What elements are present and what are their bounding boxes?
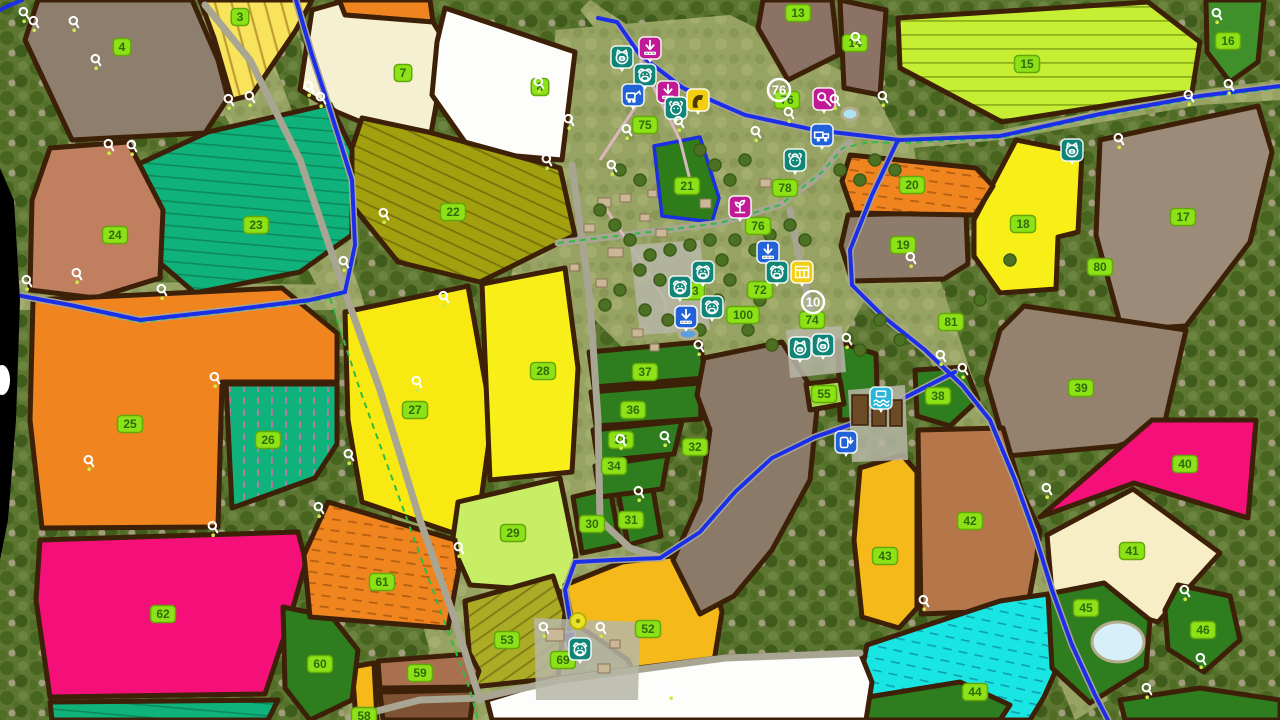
svg-text:72: 72 (753, 283, 767, 297)
vehicle-shop-icon[interactable] (622, 84, 644, 110)
cow-barn-icon[interactable] (766, 261, 788, 287)
field-43[interactable] (854, 455, 917, 628)
field-label-21: 21 (675, 178, 700, 195)
field-label-61: 61 (370, 574, 395, 591)
svg-text:32: 32 (688, 440, 702, 454)
svg-text:38: 38 (931, 389, 945, 403)
field-label-43: 43 (873, 548, 898, 565)
svg-text:43: 43 (878, 549, 892, 563)
tree (594, 204, 606, 216)
svg-text:34: 34 (607, 459, 621, 473)
unload-point-icon[interactable] (675, 306, 697, 332)
building (648, 190, 657, 197)
field-label-23: 23 (244, 217, 269, 234)
svg-text:78: 78 (778, 181, 792, 195)
tree (662, 314, 674, 326)
svg-text:29: 29 (506, 526, 520, 540)
game-map-screen: 3478222324252662272829303134353637211314… (0, 0, 1280, 720)
field-label-31: 31 (619, 512, 644, 529)
field-label-75: 75 (633, 117, 658, 134)
field-label-52: 52 (636, 621, 661, 638)
svg-text:100: 100 (733, 308, 753, 322)
liquid-unload-icon[interactable] (835, 431, 857, 457)
svg-text:13: 13 (791, 6, 805, 20)
water-station-icon[interactable] (870, 387, 892, 413)
svg-text:15: 15 (1020, 57, 1034, 71)
tree (654, 274, 666, 286)
tree (894, 334, 906, 346)
svg-text:24: 24 (108, 228, 122, 242)
svg-text:55: 55 (817, 387, 831, 401)
field-label-59: 59 (408, 665, 433, 682)
tree (599, 299, 611, 311)
svg-text:16: 16 (1221, 34, 1235, 48)
svg-text:36: 36 (626, 403, 640, 417)
field-label-46: 46 (1191, 622, 1216, 639)
field-label-38: 38 (926, 388, 951, 405)
svg-text:26: 26 (261, 433, 275, 447)
field-label-26: 26 (256, 432, 281, 449)
svg-text:52: 52 (641, 622, 655, 636)
building (608, 248, 623, 257)
circled-number-10: 10 (802, 291, 824, 313)
building (656, 229, 667, 237)
pond (1092, 622, 1144, 662)
tree (784, 219, 796, 231)
sheep-pasture-icon[interactable] (784, 149, 806, 175)
pond (679, 329, 697, 339)
tree (716, 254, 728, 266)
field-label-7: 7 (394, 65, 412, 82)
svg-text:41: 41 (1125, 544, 1139, 558)
svg-text:4: 4 (119, 40, 126, 54)
tree (874, 314, 886, 326)
field-label-76: 76 (746, 218, 771, 235)
tree (854, 344, 866, 356)
svg-text:44: 44 (968, 685, 982, 699)
field-label-60: 60 (308, 656, 333, 673)
tree (766, 339, 778, 351)
tree (704, 234, 716, 246)
tree (624, 234, 636, 246)
svg-text:31: 31 (624, 513, 638, 527)
svg-text:39: 39 (1074, 381, 1088, 395)
tree (889, 164, 901, 176)
field-label-53: 53 (495, 632, 520, 649)
building (610, 640, 620, 648)
field-label-80: 80 (1088, 259, 1113, 276)
svg-text:46: 46 (1196, 623, 1210, 637)
field-label-41: 41 (1120, 543, 1145, 560)
field-label-40: 40 (1173, 456, 1198, 473)
svg-text:37: 37 (638, 365, 652, 379)
svg-text:62: 62 (156, 607, 170, 621)
field-label-27: 27 (403, 402, 428, 419)
building (584, 224, 595, 232)
svg-text:69: 69 (556, 653, 570, 667)
vehicle-dealer-icon[interactable] (811, 124, 833, 150)
building (632, 329, 643, 337)
pig-barn-icon[interactable] (789, 337, 811, 363)
field-label-45: 45 (1074, 600, 1099, 617)
building (640, 214, 650, 221)
tree (709, 159, 721, 171)
tree (1004, 254, 1016, 266)
svg-text:58: 58 (357, 709, 371, 720)
cow-barn-icon[interactable] (701, 296, 723, 322)
field-label-55: 55 (812, 386, 837, 403)
field-label-78: 78 (773, 180, 798, 197)
field-label-100: 100 (727, 307, 760, 324)
building (596, 279, 607, 287)
building (546, 629, 564, 641)
field-label-44: 44 (963, 684, 988, 701)
tree (694, 144, 706, 156)
field-label-42: 42 (958, 513, 983, 530)
field-label-58: 58 (352, 708, 377, 720)
market-icon[interactable] (791, 261, 813, 287)
tree (724, 274, 736, 286)
svg-text:10: 10 (806, 294, 820, 309)
svg-text:76: 76 (772, 82, 786, 97)
cow-barn-icon[interactable] (669, 276, 691, 302)
horse-paddock-icon[interactable] (687, 89, 709, 115)
cow-barn-icon[interactable] (692, 261, 714, 287)
field-label-36: 36 (621, 402, 646, 419)
field-label-3: 3 (231, 9, 249, 26)
tree (854, 174, 866, 186)
svg-text:61: 61 (375, 575, 389, 589)
field-label-39: 39 (1069, 380, 1094, 397)
svg-text:3: 3 (237, 10, 244, 24)
svg-text:25: 25 (123, 417, 137, 431)
tree (799, 234, 811, 246)
svg-text:17: 17 (1176, 210, 1190, 224)
field-label-17: 17 (1171, 209, 1196, 226)
tree (974, 294, 986, 306)
tree (634, 264, 646, 276)
field-label-16: 16 (1216, 33, 1241, 50)
svg-text:60: 60 (313, 657, 327, 671)
tree (684, 239, 696, 251)
building (760, 179, 771, 187)
tree (729, 234, 741, 246)
tree (609, 219, 621, 231)
svg-text:53: 53 (500, 633, 514, 647)
svg-text:28: 28 (536, 364, 550, 378)
tree (644, 249, 656, 261)
svg-text:80: 80 (1093, 260, 1107, 274)
pond (842, 108, 858, 120)
svg-text:81: 81 (944, 315, 958, 329)
field-label-62: 62 (151, 606, 176, 623)
farm-map-canvas[interactable]: 3478222324252662272829303134353637211314… (0, 0, 1280, 720)
svg-text:7: 7 (400, 66, 407, 80)
field-label-14: 14 (843, 35, 868, 52)
svg-text:18: 18 (1016, 217, 1030, 231)
tree (614, 284, 626, 296)
field-label-13: 13 (786, 5, 811, 22)
svg-text:30: 30 (585, 517, 599, 531)
svg-text:75: 75 (638, 118, 652, 132)
svg-text:22: 22 (446, 205, 460, 219)
circled-number-76: 76 (768, 79, 790, 101)
svg-text:27: 27 (408, 403, 422, 417)
building (570, 264, 579, 271)
field-label-32: 32 (683, 439, 708, 456)
field-label-19: 19 (891, 237, 916, 254)
field-label-24: 24 (103, 227, 128, 244)
silo-building (852, 395, 868, 425)
svg-text:20: 20 (905, 178, 919, 192)
tree (639, 304, 651, 316)
field-label-37: 37 (633, 364, 658, 381)
field-label-28: 28 (531, 363, 556, 380)
svg-text:45: 45 (1079, 601, 1093, 615)
tree (742, 324, 754, 336)
cow-farm-icon[interactable] (569, 638, 591, 664)
field-label-4: 4 (113, 39, 131, 56)
svg-text:23: 23 (249, 218, 263, 232)
pig-pasture-icon[interactable] (1061, 139, 1083, 165)
tree (664, 244, 676, 256)
field-parcel[interactable] (50, 700, 278, 720)
tree (834, 164, 846, 176)
pig-barn-icon[interactable] (812, 334, 834, 360)
tree (739, 154, 751, 166)
tree (869, 154, 881, 166)
svg-text:40: 40 (1178, 457, 1192, 471)
sell-point-icon[interactable] (639, 37, 661, 63)
field-label-20: 20 (900, 177, 925, 194)
svg-text:21: 21 (680, 179, 694, 193)
field-label-15: 15 (1015, 56, 1040, 73)
field-label-18: 18 (1011, 216, 1036, 233)
building (650, 344, 659, 351)
field-label-81: 81 (939, 314, 964, 331)
tree (634, 174, 646, 186)
field-label-25: 25 (118, 416, 143, 433)
field-label-72: 72 (748, 282, 773, 299)
tree (724, 174, 736, 186)
building (598, 664, 610, 673)
svg-text:76: 76 (751, 219, 765, 233)
field-label-34: 34 (602, 458, 627, 475)
svg-text:19: 19 (896, 238, 910, 252)
seed-point-icon[interactable] (729, 196, 751, 222)
svg-text:74: 74 (805, 313, 819, 327)
field-label-29: 29 (501, 525, 526, 542)
pig-pasture-icon[interactable] (611, 46, 633, 72)
field-label-30: 30 (580, 516, 605, 533)
building (620, 194, 631, 202)
destination-marker (570, 613, 586, 629)
svg-text:42: 42 (963, 514, 977, 528)
svg-text:59: 59 (413, 666, 427, 680)
building (700, 199, 711, 208)
field-label-22: 22 (441, 204, 466, 221)
